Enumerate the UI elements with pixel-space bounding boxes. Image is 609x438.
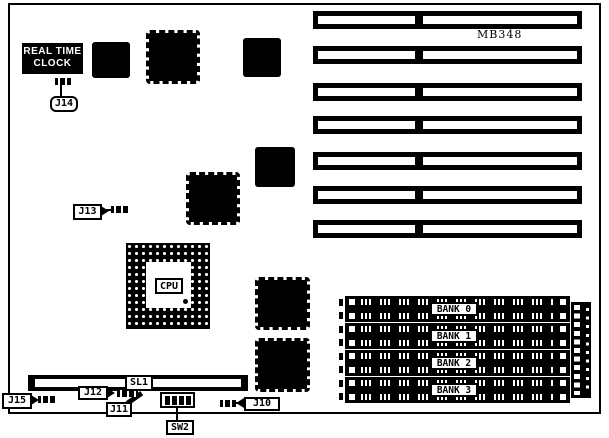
power-connector [571, 302, 591, 398]
j14-pointer-line [60, 85, 62, 96]
ic-chip-qfp [255, 338, 310, 392]
sw2-label: SW2 [166, 420, 194, 435]
j11-label: J11 [106, 402, 132, 417]
j14-label: J14 [50, 96, 78, 112]
slot-window [423, 157, 577, 165]
sw2-dip-switch [160, 392, 195, 408]
socket-latch [560, 313, 566, 319]
slot-window [423, 191, 577, 199]
j15-connector [38, 396, 57, 403]
expansion-slot-4 [313, 116, 582, 134]
bank-cap [339, 380, 343, 387]
dip-switch-segment [179, 396, 184, 405]
simm-bank-3: BANK 3 [345, 377, 570, 403]
slot-window [423, 51, 577, 59]
bank-cap [339, 339, 343, 346]
ic-chip-qfp [186, 172, 240, 225]
simm-bank-1: BANK 1 [345, 323, 570, 349]
socket-latch [560, 380, 566, 386]
sl1-label: SL1 [125, 375, 153, 391]
pin1-dot [183, 299, 188, 304]
socket-latch [560, 367, 566, 373]
j13-label: J13 [73, 204, 102, 220]
j14-connector [55, 78, 71, 85]
bank-cap [339, 299, 343, 306]
slot-window [423, 225, 577, 233]
socket-latch [560, 299, 566, 305]
j10-label: J10 [244, 397, 280, 411]
ic-chip [92, 42, 130, 78]
slot-window [318, 191, 415, 199]
socket-latch [349, 353, 355, 359]
socket-latch [560, 326, 566, 332]
bank-cap [339, 393, 343, 400]
dip-switch-segment [186, 396, 191, 405]
cpu-socket: CPU [126, 243, 210, 329]
socket-latch [560, 353, 566, 359]
power-pins [574, 305, 580, 395]
slot-window [423, 121, 577, 129]
rtc-label-line1: REAL TIME [22, 46, 83, 58]
slot-window [318, 157, 415, 165]
expansion-slot-6 [313, 186, 582, 204]
bank-2-label: BANK 2 [430, 356, 478, 370]
sw2-pointer-line [176, 408, 178, 420]
bank-3-label: BANK 3 [430, 383, 478, 397]
expansion-slot-7 [313, 220, 582, 238]
socket-latch [560, 394, 566, 400]
j10-pointer [236, 398, 244, 408]
j15-label: J15 [2, 393, 32, 409]
cpu-socket-center: CPU [146, 262, 191, 308]
socket-latch [560, 340, 566, 346]
ic-chip-qfp [146, 30, 200, 84]
slot-window [318, 88, 415, 96]
dip-switch-segment [165, 396, 170, 405]
j13-connector [111, 206, 129, 213]
motherboard-diagram: REAL TIME CLOCK J14 MB348 J13 CPU BANK 0 [0, 0, 609, 438]
socket-latch [349, 313, 355, 319]
j12-label: J12 [78, 386, 108, 400]
bank-0-label: BANK 0 [430, 302, 478, 316]
expansion-slot-3 [313, 83, 582, 101]
j12-connector [117, 390, 138, 397]
bank-cap [339, 326, 343, 333]
simm-bank-0: BANK 0 [345, 296, 570, 322]
slot-window [423, 16, 577, 24]
power-pins [586, 308, 589, 394]
dip-switch-segment [172, 396, 177, 405]
slot-window [318, 225, 415, 233]
socket-latch [349, 380, 355, 386]
bank-cap [339, 312, 343, 319]
slot-window [318, 16, 415, 24]
real-time-clock-chip: REAL TIME CLOCK [22, 43, 83, 74]
ic-chip-qfp [255, 277, 310, 330]
j12-pointer [107, 388, 115, 398]
socket-latch [349, 394, 355, 400]
j13-pointer [101, 206, 109, 216]
slot-window [423, 88, 577, 96]
expansion-slot-2 [313, 46, 582, 64]
bank-cap [339, 353, 343, 360]
cpu-label: CPU [155, 278, 183, 294]
j10-connector [220, 400, 236, 407]
bank-1-label: BANK 1 [430, 329, 478, 343]
board-model-text: MB348 [477, 28, 522, 41]
socket-latch [349, 340, 355, 346]
bank-cap [339, 366, 343, 373]
socket-latch [349, 367, 355, 373]
ic-chip [255, 147, 295, 187]
slot-window [318, 121, 415, 129]
rtc-label-line2: CLOCK [22, 58, 83, 70]
expansion-slot-5 [313, 152, 582, 170]
expansion-slot-1 [313, 11, 582, 29]
ic-chip [243, 38, 281, 77]
socket-latch [349, 326, 355, 332]
simm-bank-2: BANK 2 [345, 350, 570, 376]
socket-latch [349, 299, 355, 305]
slot-window [318, 51, 415, 59]
